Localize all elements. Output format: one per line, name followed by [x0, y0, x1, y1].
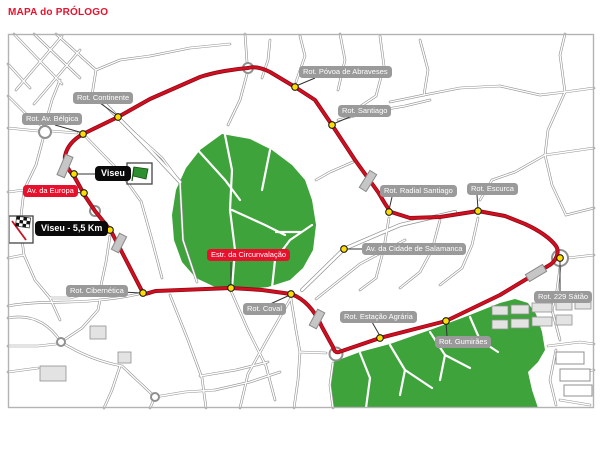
building-block — [492, 306, 508, 315]
label-rot-escurca: Rot. Escurca — [467, 183, 518, 195]
route-marker — [81, 190, 88, 197]
roundabout — [39, 126, 51, 138]
label-rot-coval: Rot. Coval — [243, 303, 286, 315]
label-finish-distance: Viseu - 5,5 Km — [35, 221, 108, 236]
label-estr-circunvalacao: Estr. da Circunvalação — [207, 249, 290, 261]
label-rot-radial-santiago: Rot. Radial Santiago — [380, 185, 457, 197]
route-marker — [557, 255, 564, 262]
road-fill — [300, 352, 326, 353]
route-marker — [341, 246, 348, 253]
building-block — [511, 319, 529, 328]
building-block — [492, 320, 508, 329]
route-marker — [228, 285, 235, 292]
label-rot-santiago: Rot. Santiago — [338, 105, 391, 117]
label-rot-229-satao: Rot. 229 Sátão — [534, 291, 592, 303]
building-block — [556, 315, 572, 325]
label-rot-av-belgica: Rot. Av. Bélgica — [22, 113, 82, 125]
route-marker — [377, 335, 384, 342]
label-av-cidade-salamanca: Av. da Cidade de Salamanca — [362, 243, 466, 255]
label-start-viseu: Viseu — [95, 166, 131, 181]
building-block — [511, 305, 529, 314]
roundabout — [57, 338, 65, 346]
building-block — [90, 326, 106, 339]
route-marker — [288, 291, 295, 298]
route-marker — [443, 318, 450, 325]
route-marker — [115, 114, 122, 121]
label-rot-estacao-agraria: Rot. Estação Agrária — [340, 311, 417, 323]
route-marker — [386, 209, 393, 216]
label-rot-gumiraes: Rot. Gumirães — [435, 336, 491, 348]
building-block — [532, 303, 552, 312]
route-marker — [80, 131, 87, 138]
label-rot-continente: Rot. Continente — [73, 92, 133, 104]
label-av-europa: Av. da Europa — [23, 185, 78, 197]
prologue-map: MAPA do PRÓLOGO — [0, 0, 600, 449]
city-block — [564, 385, 592, 396]
building-block — [532, 317, 552, 326]
building-block — [118, 352, 131, 363]
city-block — [560, 369, 590, 381]
roundabout — [151, 393, 159, 401]
city-block — [556, 352, 584, 364]
route-marker — [292, 84, 299, 91]
route-marker — [475, 208, 482, 215]
route-marker — [329, 122, 336, 129]
label-rot-cibernetica: Rot. Cibernética — [66, 285, 128, 297]
route-marker — [140, 290, 147, 297]
route-marker — [71, 171, 78, 178]
building-block — [40, 366, 66, 381]
checkered-flag-icon — [9, 216, 33, 243]
label-rot-povoa-abraveses: Rot. Póvoa de Abraveses — [299, 66, 392, 78]
